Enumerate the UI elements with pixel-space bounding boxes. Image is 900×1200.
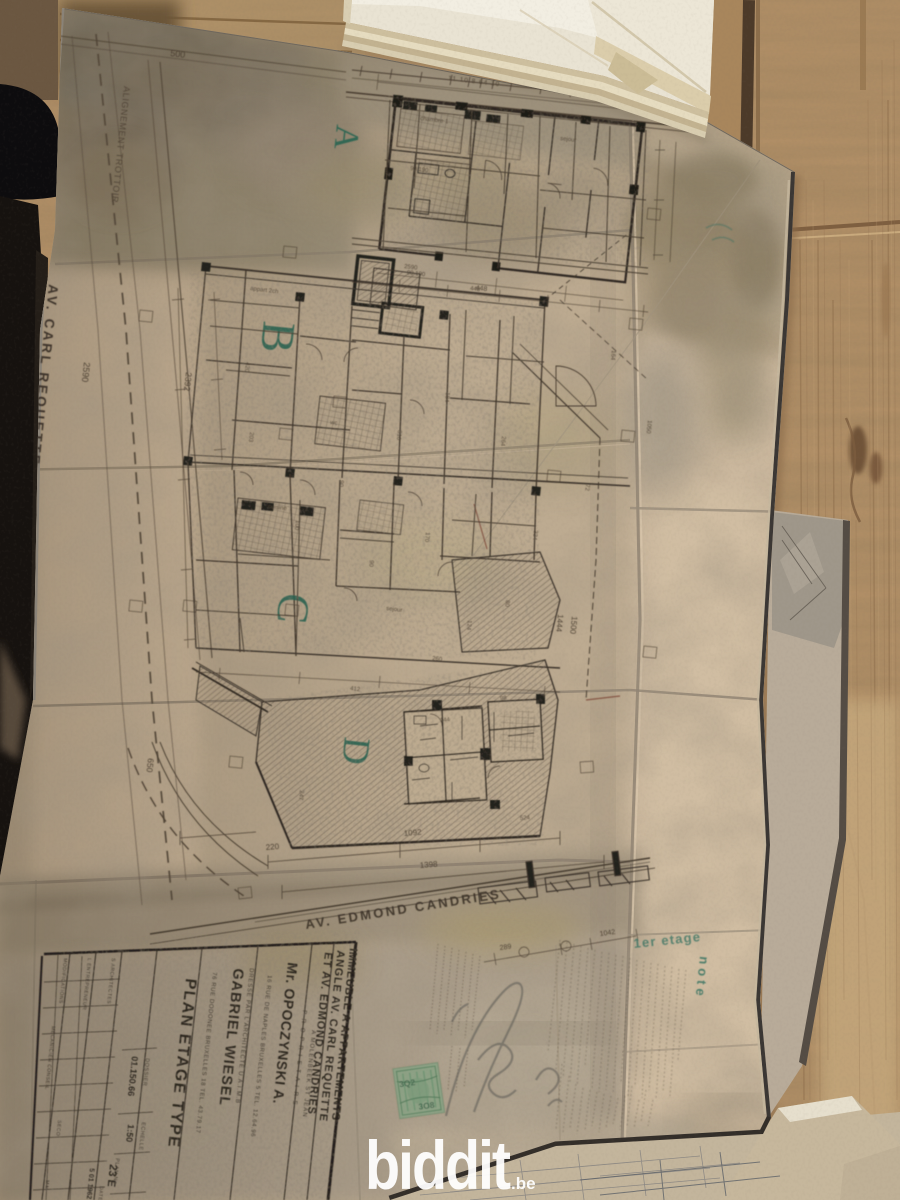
svg-text:biddit: biddit [365, 1127, 511, 1200]
svg-text:.be: .be [511, 1174, 536, 1193]
